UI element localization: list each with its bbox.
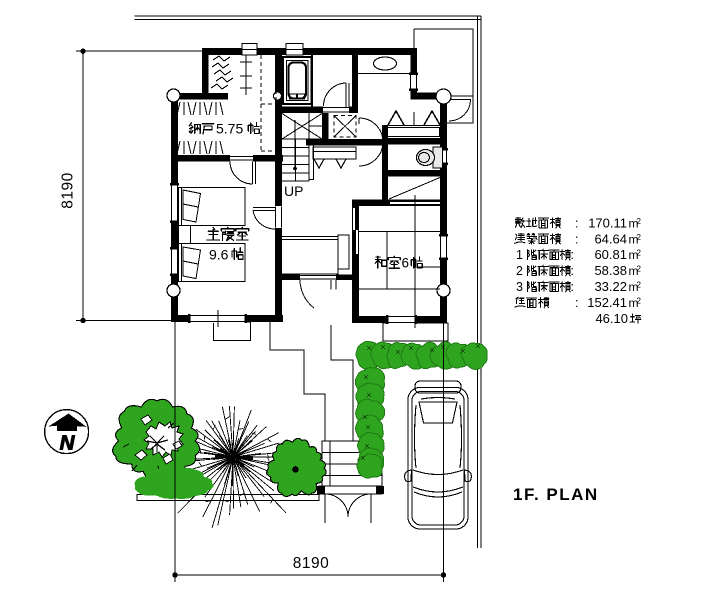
svg-text:2: 2 <box>637 281 642 290</box>
svg-text:8190: 8190 <box>60 172 77 208</box>
svg-text:64.64: 64.64 <box>594 231 627 246</box>
svg-text::: : <box>575 216 578 230</box>
svg-text:8190: 8190 <box>293 555 329 572</box>
svg-text::: : <box>571 280 574 294</box>
svg-text:2: 2 <box>637 265 642 274</box>
svg-text::: : <box>571 248 574 262</box>
svg-text:2: 2 <box>637 249 642 258</box>
svg-text:60.81: 60.81 <box>594 247 627 262</box>
svg-text::: : <box>575 296 578 310</box>
svg-text:2: 2 <box>516 264 523 278</box>
svg-text:UP: UP <box>284 183 303 199</box>
svg-text:152.41: 152.41 <box>587 295 627 310</box>
svg-text:46.10: 46.10 <box>595 311 628 326</box>
svg-text:2: 2 <box>637 297 642 306</box>
svg-text:170.11: 170.11 <box>588 215 627 230</box>
svg-text:2: 2 <box>637 233 642 242</box>
svg-text::: : <box>575 232 578 246</box>
svg-text:5.75: 5.75 <box>216 121 243 137</box>
svg-text:1: 1 <box>516 248 523 262</box>
svg-text::: : <box>571 264 574 278</box>
svg-text:3: 3 <box>516 280 523 294</box>
svg-text:33.22: 33.22 <box>594 279 627 294</box>
svg-text:6: 6 <box>402 256 410 271</box>
svg-text:N: N <box>60 432 76 455</box>
svg-text:1F. PLAN: 1F. PLAN <box>513 485 599 504</box>
svg-text:2: 2 <box>637 217 642 226</box>
svg-text:58.38: 58.38 <box>594 263 627 278</box>
svg-text:9.6: 9.6 <box>209 247 229 263</box>
